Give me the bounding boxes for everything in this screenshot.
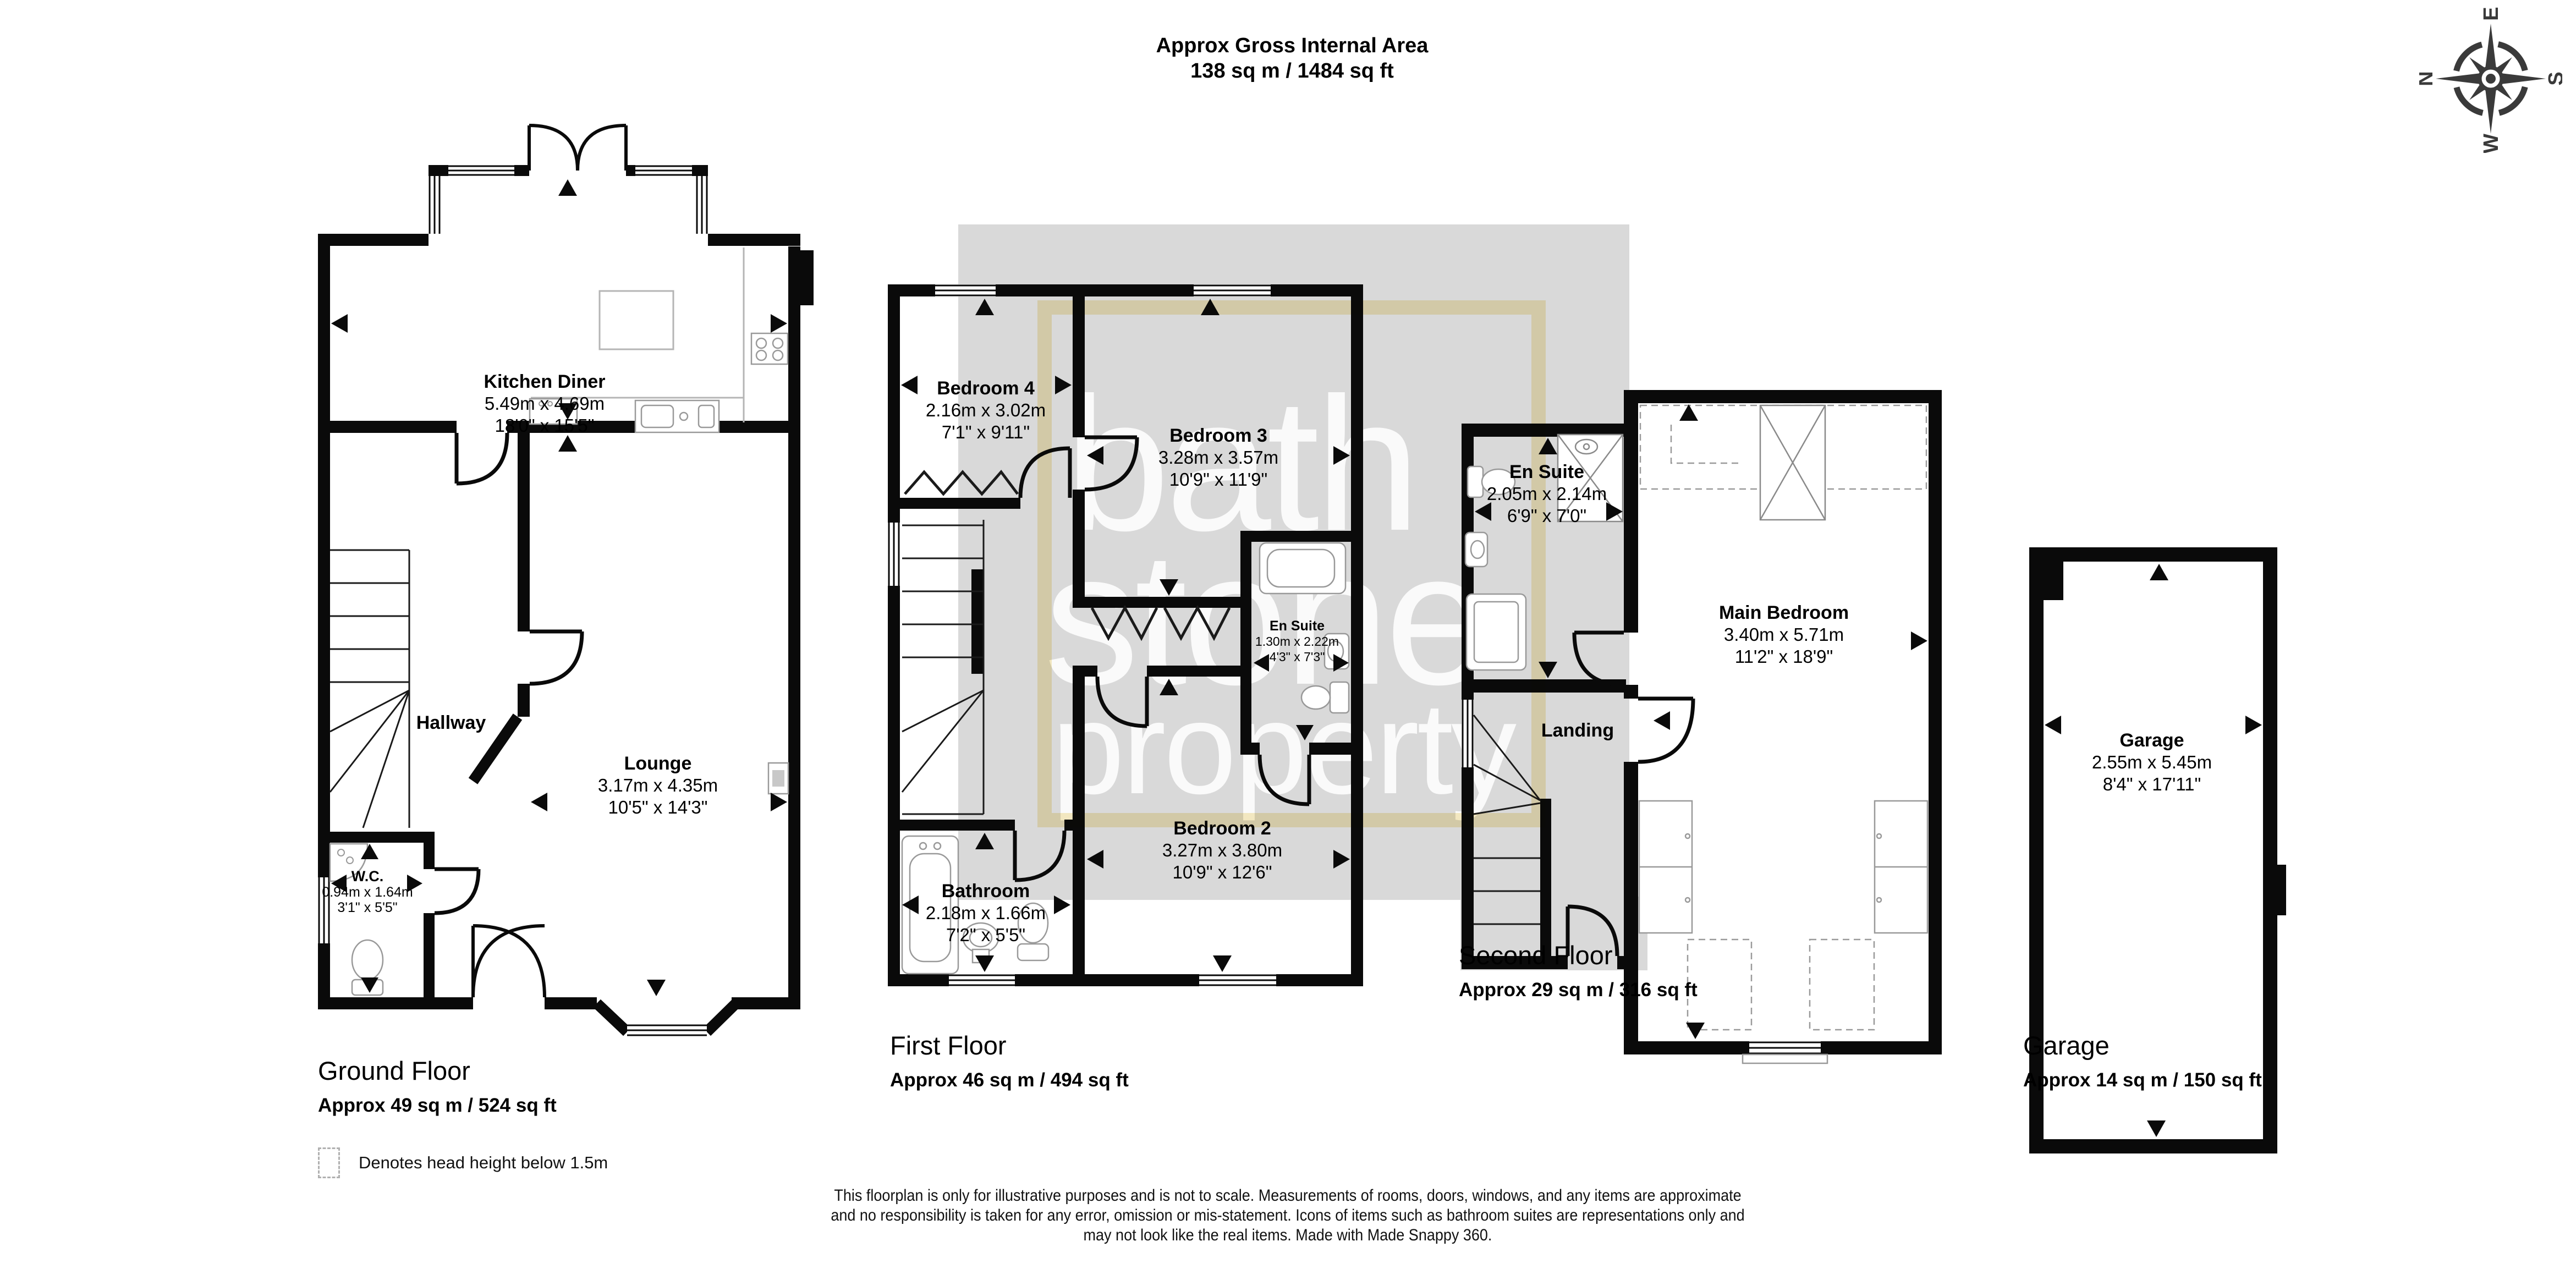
stairs-first: [902, 520, 984, 814]
caption-second-floor: Second Floor Approx 29 sq m / 316 sq ft: [1459, 942, 1698, 1001]
room-label-main-bedroom: Main Bedroom 3.40m x 5.71m 11'2" x 18'9": [1719, 602, 1849, 668]
caption-ground-floor: Ground Floor Approx 49 sq m / 524 sq ft: [318, 1057, 557, 1117]
hob-icon: [751, 333, 788, 364]
gross-internal-area-title: Approx Gross Internal Area 138 sq m / 14…: [1156, 33, 1429, 84]
compass-s: S: [2545, 72, 2562, 85]
compass-w: W: [2480, 134, 2503, 153]
title-line-2: 138 sq m / 1484 sq ft: [1156, 58, 1429, 84]
room-label-kitchen-diner: Kitchen Diner 5.49m x 4.69m 18'0" x 15'5…: [484, 371, 605, 437]
disclaimer: This floorplan is only for illustrative …: [545, 1186, 2030, 1245]
compass-n: N: [2419, 71, 2437, 86]
floorplan-canvas: bath stone property: [0, 0, 2576, 1269]
room-label-bedroom4: Bedroom 4 2.16m x 3.02m 7'1" x 9'11": [926, 377, 1046, 443]
room-label-landing: Landing: [1541, 719, 1614, 741]
bay-wall: [597, 1003, 627, 1032]
stairs-ground: [330, 550, 409, 828]
room-label-bedroom2: Bedroom 2 3.27m x 3.80m 10'9" x 12'6": [1162, 817, 1282, 883]
bay-wall: [707, 1003, 736, 1032]
caption-garage: Garage Approx 14 sq m / 150 sq ft: [2023, 1032, 2262, 1091]
compass-e: E: [2480, 7, 2503, 20]
compass-rose-icon: N E S W: [2419, 4, 2562, 153]
wardrobe-icons-second: [1639, 801, 1927, 933]
door-arcs-ground: [435, 125, 626, 997]
sink-icon: [635, 400, 719, 432]
room-label-wc: W.C. 0.94m x 1.64m 3'1" x 5'5": [322, 868, 413, 915]
caption-first-floor: First Floor Approx 46 sq m / 494 sq ft: [890, 1032, 1129, 1091]
head-height-legend-icon: [318, 1147, 340, 1178]
room-label-lounge: Lounge 3.17m x 4.35m 10'5" x 14'3": [598, 752, 718, 818]
room-label-garage: Garage 2.55m x 5.45m 8'4" x 17'11": [2092, 729, 2212, 795]
fireplace-icon: [768, 763, 788, 794]
chimney-breast: [1760, 405, 1825, 520]
disclaimer-line-3: may not look like the real items. Made w…: [545, 1226, 2030, 1245]
disclaimer-line-1: This floorplan is only for illustrative …: [545, 1186, 2030, 1206]
highlight-outline: [1037, 300, 1546, 827]
title-line-1: Approx Gross Internal Area: [1156, 33, 1429, 58]
disclaimer-line-2: and no responsibility is taken for any e…: [545, 1206, 2030, 1226]
room-label-hallway: Hallway: [416, 712, 486, 734]
head-height-legend-text: Denotes head height below 1.5m: [359, 1153, 608, 1173]
room-label-bathroom: Bathroom 2.18m x 1.66m 7'2" x 5'5": [926, 880, 1046, 946]
